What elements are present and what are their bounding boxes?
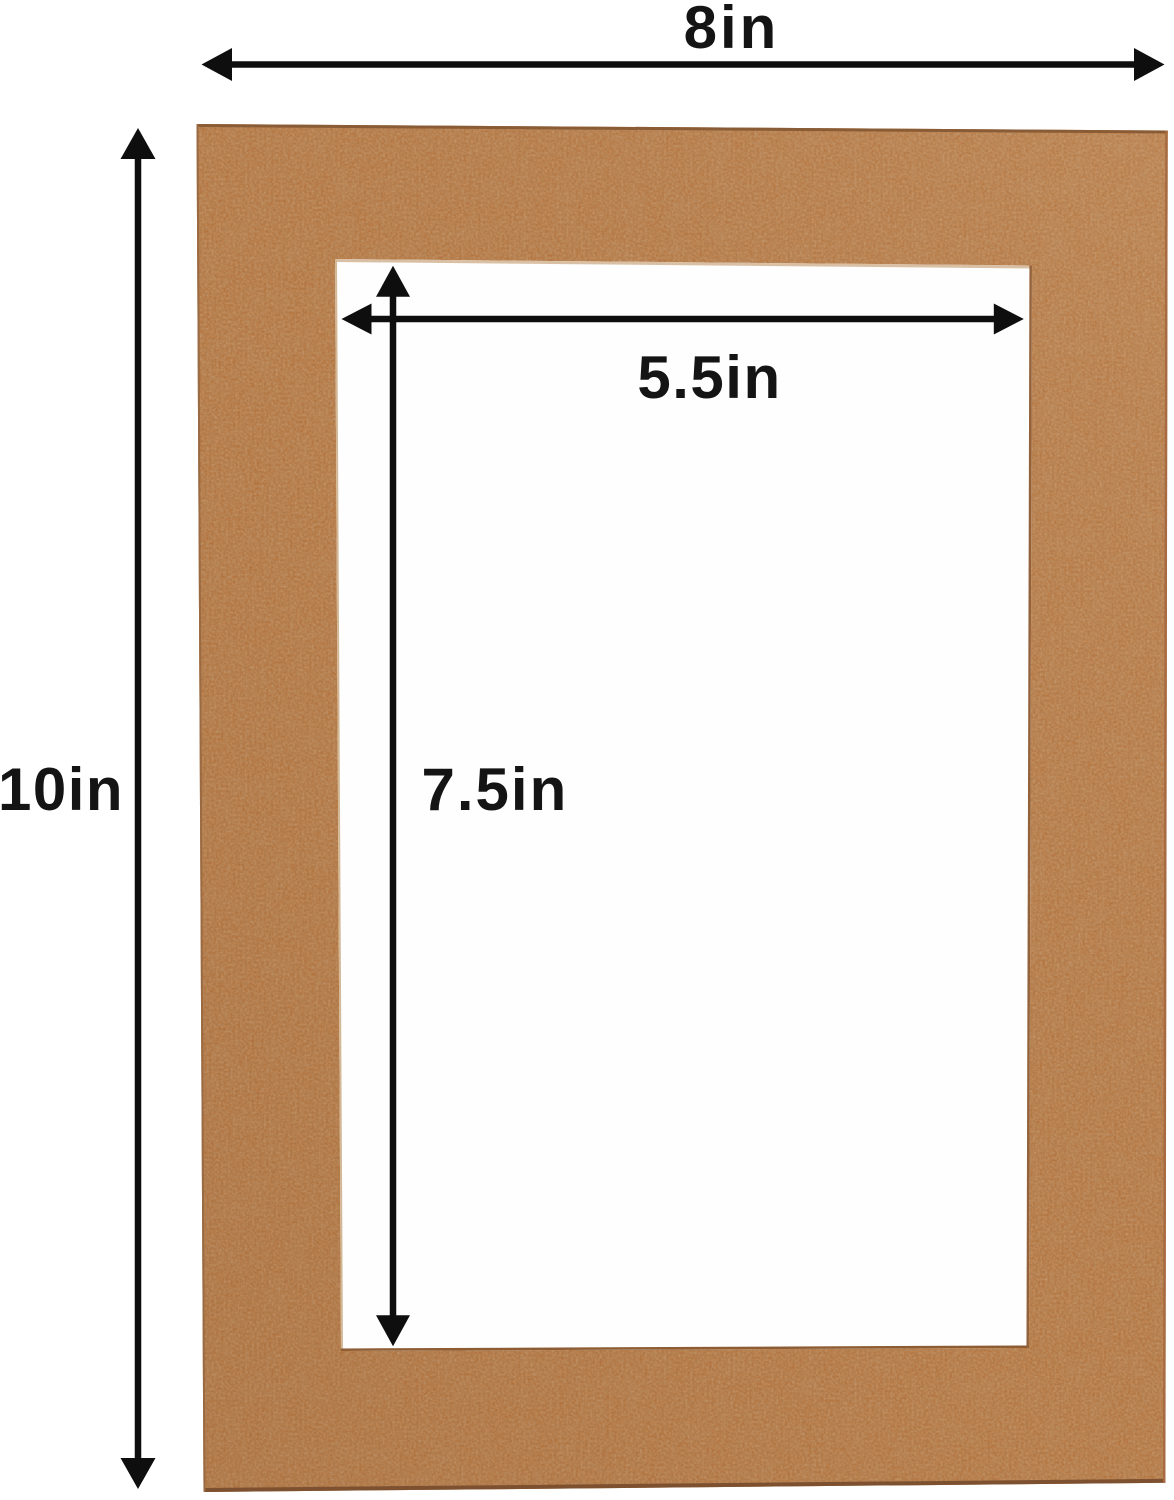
svg-text:7.5in: 7.5in xyxy=(422,756,569,823)
svg-text:8in: 8in xyxy=(684,0,780,61)
svg-text:5.5in: 5.5in xyxy=(637,344,781,411)
svg-text:10in: 10in xyxy=(0,756,124,823)
